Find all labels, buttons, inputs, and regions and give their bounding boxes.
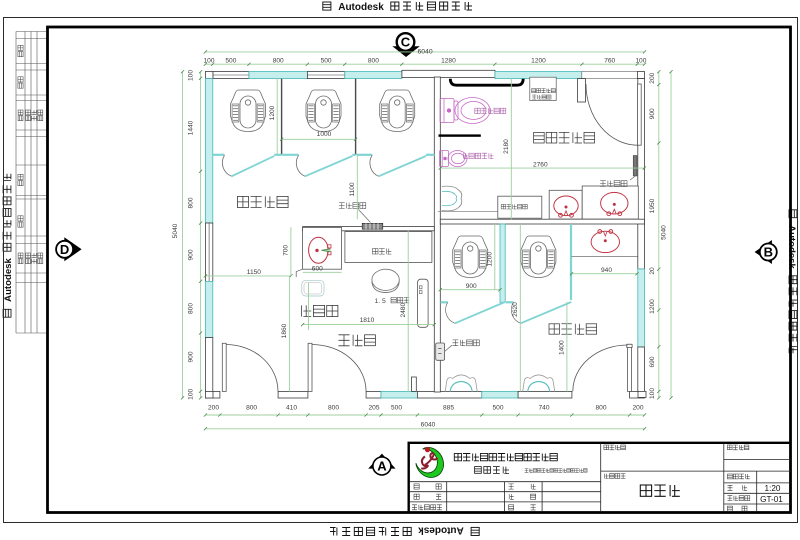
svg-text:1440: 1440: [187, 120, 194, 135]
svg-text:Autodesk: Autodesk: [3, 257, 14, 301]
svg-text:200: 200: [208, 405, 219, 412]
svg-text:1200: 1200: [269, 105, 276, 120]
svg-text:6040: 6040: [421, 422, 436, 429]
svg-text:500: 500: [492, 405, 503, 412]
svg-text:5040: 5040: [172, 223, 179, 238]
svg-text:1150: 1150: [247, 269, 262, 276]
svg-text:2480: 2480: [400, 303, 407, 318]
svg-text:1100: 1100: [349, 182, 356, 197]
svg-text:885: 885: [443, 405, 454, 412]
svg-text:1000: 1000: [317, 131, 332, 138]
svg-text:740: 740: [538, 405, 549, 412]
svg-text:200: 200: [632, 405, 643, 412]
svg-text:5040: 5040: [661, 225, 668, 240]
svg-text:B: B: [764, 245, 773, 260]
svg-text:800: 800: [273, 58, 284, 65]
svg-text:100: 100: [635, 58, 646, 65]
svg-text:800: 800: [368, 58, 379, 65]
svg-text:2620: 2620: [512, 302, 519, 317]
svg-text:100: 100: [187, 70, 194, 81]
svg-text:200: 200: [649, 72, 656, 83]
svg-text:Autodesk: Autodesk: [418, 525, 464, 536]
svg-text:500: 500: [321, 58, 332, 65]
svg-text:500: 500: [391, 405, 402, 412]
svg-text:800: 800: [328, 405, 339, 412]
svg-text:900: 900: [187, 351, 194, 362]
svg-text:760: 760: [604, 58, 615, 65]
svg-text:D: D: [60, 242, 69, 257]
svg-text:Autodesk: Autodesk: [338, 2, 384, 13]
svg-text:6040: 6040: [418, 48, 433, 55]
svg-text:1. 5: 1. 5: [375, 298, 387, 305]
svg-text:800: 800: [187, 303, 194, 314]
svg-text:1200: 1200: [649, 299, 656, 314]
svg-text:1860: 1860: [281, 323, 288, 338]
svg-text:900: 900: [466, 283, 477, 290]
svg-text:900: 900: [187, 249, 194, 260]
svg-text:940: 940: [601, 267, 612, 274]
svg-text:800: 800: [246, 405, 257, 412]
svg-text:1280: 1280: [441, 58, 456, 65]
svg-text:690: 690: [649, 356, 656, 367]
svg-text:100: 100: [187, 388, 194, 399]
svg-text:2180: 2180: [503, 139, 510, 154]
svg-text:700: 700: [283, 245, 290, 256]
svg-text:500: 500: [225, 58, 236, 65]
svg-text:20: 20: [649, 267, 656, 275]
svg-text:A: A: [377, 459, 387, 474]
svg-text:1200: 1200: [487, 252, 494, 267]
svg-text:1810: 1810: [360, 317, 375, 324]
svg-text:900: 900: [649, 108, 656, 119]
svg-text:205: 205: [368, 405, 379, 412]
svg-text:1400: 1400: [559, 340, 566, 355]
svg-text:2760: 2760: [533, 161, 548, 168]
svg-text:600: 600: [312, 266, 323, 273]
svg-text:C: C: [401, 35, 411, 50]
svg-text:800: 800: [187, 197, 194, 208]
svg-text:1:20: 1:20: [765, 484, 781, 493]
svg-text:100: 100: [203, 58, 214, 65]
svg-text:GT-01: GT-01: [760, 495, 783, 504]
svg-text:1950: 1950: [649, 198, 656, 213]
svg-text:800: 800: [595, 405, 606, 412]
svg-text:410: 410: [286, 405, 297, 412]
svg-text:100: 100: [649, 388, 656, 399]
svg-text:1200: 1200: [531, 58, 546, 65]
